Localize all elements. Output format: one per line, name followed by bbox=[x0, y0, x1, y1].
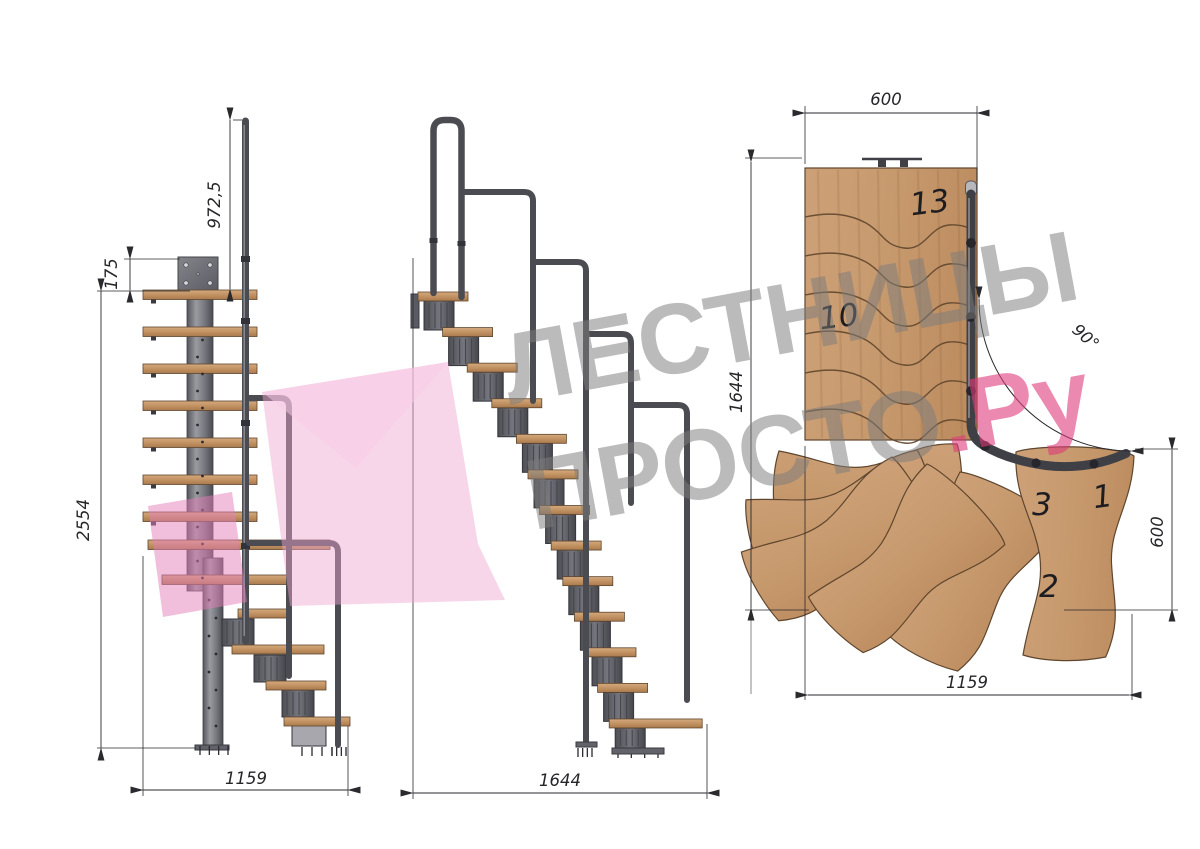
staircase-technical-drawing: 972,5 175 2554 1159 1644 bbox=[0, 0, 1200, 849]
handrail-segment-2 bbox=[589, 334, 631, 503]
column-hole bbox=[208, 707, 211, 710]
tread-clamp bbox=[151, 337, 156, 341]
tread bbox=[143, 364, 257, 374]
step-number-3: 3 bbox=[1032, 487, 1052, 523]
step-number-13: 13 bbox=[908, 183, 952, 224]
column-hole bbox=[201, 339, 204, 342]
bottom-module-flange bbox=[612, 748, 664, 754]
tread bbox=[232, 645, 324, 654]
dim-turn-angle: 90° bbox=[1068, 320, 1102, 354]
step-number-10: 10 bbox=[817, 297, 861, 338]
tread bbox=[143, 290, 257, 300]
dim-plan-right-width: 600 bbox=[1148, 516, 1167, 548]
column-hole bbox=[215, 725, 218, 728]
tread bbox=[516, 434, 566, 443]
tread bbox=[143, 327, 257, 337]
dim-plan-bottom-length: 1159 bbox=[946, 673, 988, 692]
dim-handrail-height: 972,5 bbox=[205, 181, 224, 228]
tread bbox=[467, 363, 517, 372]
plan-handrail bbox=[971, 194, 1126, 467]
tread bbox=[143, 401, 257, 411]
column-hole bbox=[196, 424, 199, 427]
column-hole bbox=[208, 635, 211, 638]
tread bbox=[143, 475, 257, 485]
column-hole bbox=[215, 653, 218, 656]
column-hole bbox=[201, 475, 204, 478]
tread bbox=[609, 719, 702, 728]
tread-clamp bbox=[151, 300, 156, 304]
tread-clamp bbox=[151, 448, 156, 452]
handrail-segment-3 bbox=[634, 405, 687, 700]
handrail-top-loop bbox=[434, 120, 462, 297]
column-hole bbox=[196, 458, 199, 461]
column-hole bbox=[196, 356, 199, 359]
support-leg-flange bbox=[576, 742, 597, 747]
dim-plan-left-length: 1644 bbox=[727, 371, 746, 413]
column-hole bbox=[201, 373, 204, 376]
plan-rail-joints bbox=[966, 238, 1099, 469]
tread bbox=[266, 681, 326, 690]
tread bbox=[551, 541, 601, 550]
dim-front-width: 1159 bbox=[225, 769, 267, 788]
step-number-2: 2 bbox=[1039, 569, 1059, 605]
column-hole bbox=[201, 407, 204, 410]
top-wall-bracket-tabs bbox=[878, 160, 908, 167]
column-hole bbox=[215, 689, 218, 692]
tread bbox=[540, 505, 590, 514]
tread bbox=[528, 470, 578, 479]
tread bbox=[143, 438, 257, 448]
column-hole bbox=[208, 671, 211, 674]
tread bbox=[574, 612, 624, 621]
dim-side-length: 1644 bbox=[539, 771, 581, 790]
column-hole bbox=[196, 492, 199, 495]
column-hole bbox=[215, 617, 218, 620]
angle-arc-90 bbox=[979, 299, 1131, 451]
tread bbox=[598, 683, 648, 692]
dim-plan-top-width: 600 bbox=[870, 90, 902, 109]
column-hole bbox=[201, 441, 204, 444]
dim-total-height: 2554 bbox=[74, 499, 93, 541]
plan-view: 13 10 3 1 2 600 1644 90° 600 1159 bbox=[727, 90, 1178, 700]
dim-plate-offset: 175 bbox=[102, 258, 121, 290]
tread bbox=[586, 648, 636, 657]
step-module bbox=[292, 724, 326, 746]
winder-treads-fan bbox=[733, 444, 1134, 686]
tread-clamp bbox=[151, 374, 156, 378]
tread bbox=[443, 328, 493, 337]
tread-clamp bbox=[151, 411, 156, 415]
tread-clamp bbox=[151, 485, 156, 489]
column-hole bbox=[196, 390, 199, 393]
drawing-page: 972,5 175 2554 1159 1644 bbox=[0, 0, 1200, 849]
